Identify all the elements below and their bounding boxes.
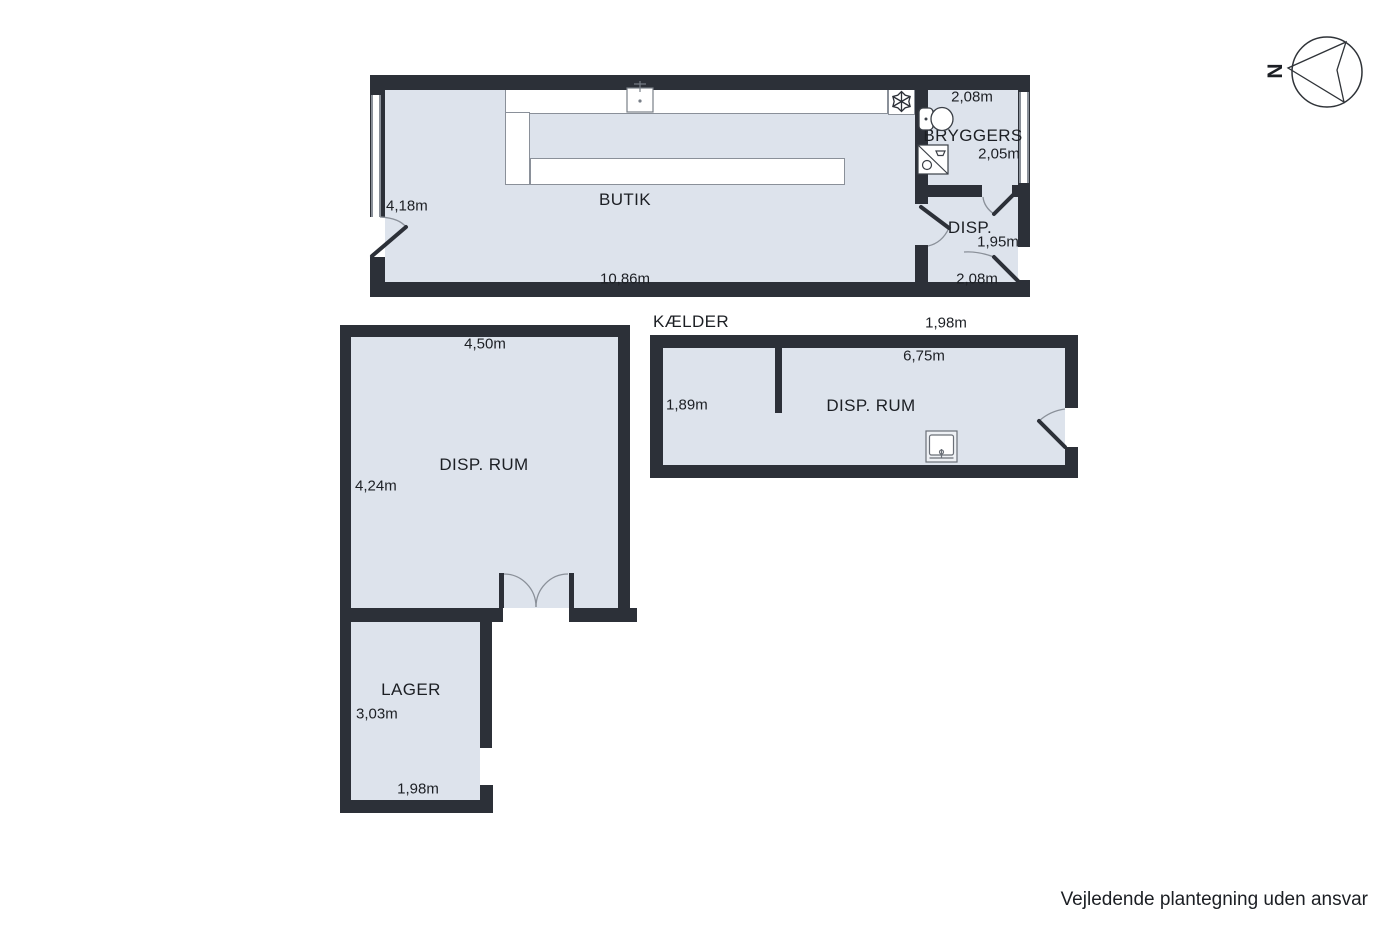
bryggers-bottom-wall-stub	[1012, 185, 1018, 197]
annex-left-wall	[340, 325, 351, 813]
lager-bottom-wall	[340, 800, 493, 813]
basement-door-opening	[1065, 408, 1078, 447]
basement-divider-wall	[775, 348, 782, 413]
annex-width-label: 4,50m	[464, 336, 506, 353]
butik-entry-opening	[370, 217, 385, 257]
compass-icon	[1288, 37, 1362, 107]
bryggers-width-label: 2,08m	[951, 89, 993, 106]
butik-room-label: BUTIK	[599, 190, 651, 210]
butik-depth-label: 4,18m	[386, 198, 428, 215]
compass-north-label: N	[1264, 63, 1288, 78]
disp-exit-opening	[1018, 247, 1030, 280]
basement-top-right-dim: 1,98m	[925, 315, 967, 332]
butik-counter-top	[505, 88, 888, 114]
basement-left-wall	[650, 335, 663, 478]
double-door-post-left	[499, 573, 504, 608]
ground-bottom-wall	[370, 282, 1030, 297]
ground-top-wall	[370, 75, 1030, 90]
basement-top-wall	[650, 335, 1078, 348]
basement-depth-label: 1,89m	[666, 397, 708, 414]
freezer-box	[888, 88, 915, 115]
bryggers-disp-door-opening	[982, 185, 1012, 197]
annex-bottom-wall-right	[569, 608, 637, 622]
annex-room-label: DISP. RUM	[439, 455, 528, 475]
butik-width-label: 10,86m	[600, 271, 650, 288]
basement-bottom-wall	[650, 465, 1078, 478]
basement-room-label: DISP. RUM	[826, 396, 915, 416]
basement-title: KÆLDER	[653, 312, 729, 332]
double-door-post-right	[569, 573, 574, 608]
floorplan-page: 4,18m BUTIK 10,86m 2,08m BRYGGERS 2,05m …	[0, 0, 1400, 933]
basement-width-label: 6,75m	[903, 348, 945, 365]
bryggers-bottom-wall	[915, 185, 982, 197]
disp-depth-label: 1,95m	[977, 234, 1019, 251]
butik-disp-door-opening	[915, 204, 928, 245]
lager-width-label: 1,98m	[397, 781, 439, 798]
disclaimer-text: Vejledende plantegning uden ansvar	[1061, 889, 1368, 911]
bryggers-room-label: BRYGGERS	[923, 126, 1022, 146]
butik-counter-island	[530, 158, 845, 185]
basement-right-wall	[1065, 335, 1078, 478]
disp-width-label: 2,08m	[956, 271, 998, 288]
annex-depth-label: 4,24m	[355, 478, 397, 495]
annex-right-wall	[618, 325, 630, 608]
butik-window	[371, 95, 381, 217]
bryggers-depth-label: 2,05m	[978, 146, 1020, 163]
lager-depth-label: 3,03m	[356, 706, 398, 723]
butik-counter-side	[505, 112, 530, 185]
butik-floor	[385, 90, 915, 282]
lager-room-label: LAGER	[381, 680, 441, 700]
lager-right-wall	[480, 612, 492, 748]
